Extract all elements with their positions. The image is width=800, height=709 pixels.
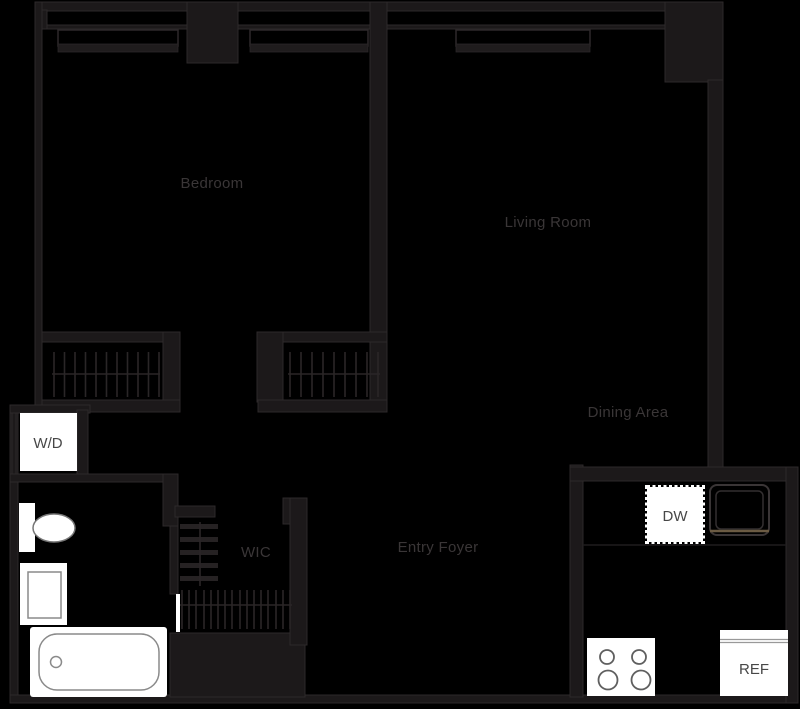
- kitchen-top-wall: [570, 467, 798, 481]
- wic-label: WIC: [241, 544, 271, 561]
- washer-dryer-label: W/D: [33, 435, 62, 452]
- window-line-living: [387, 25, 665, 29]
- wall-top: [37, 2, 667, 11]
- bedroom-south-wall-right: [258, 400, 387, 412]
- room-labels: Bedroom Living Room Dining Area Entry Fo…: [181, 175, 669, 561]
- kitchen-left-wall: [570, 465, 583, 697]
- wic-shelf: [180, 563, 218, 568]
- wall-block-south: [170, 633, 305, 697]
- toilet-bowl: [33, 514, 75, 542]
- bedroom-closets: [42, 332, 387, 412]
- bathtub-drain: [51, 657, 62, 668]
- wic-shelf: [180, 550, 218, 555]
- kitchen-sink: [710, 485, 769, 535]
- wall-bedroom-living-divider: [370, 2, 387, 412]
- bathroom-sink-basin: [28, 572, 61, 618]
- window-line-bedroom-2: [238, 25, 370, 29]
- wall-pillar-top: [187, 2, 238, 63]
- wic-shelf: [180, 524, 218, 529]
- wic-hangers: [182, 590, 290, 629]
- window-sill-bar-bedroom-1: [58, 44, 178, 52]
- window-sill-bar-living: [456, 44, 590, 52]
- wic-right-wall: [290, 498, 307, 645]
- bathroom-top-wall: [10, 474, 178, 482]
- dining-area-label: Dining Area: [588, 404, 669, 421]
- kitchen-appliances: DW REF: [587, 485, 788, 696]
- floor-plan-drawing: W/D DW REF Bedroom Living Room Dining Ar…: [0, 0, 800, 709]
- wic-left-wall: [163, 474, 178, 526]
- floor-plan: W/D DW REF Bedroom Living Room Dining Ar…: [0, 0, 800, 709]
- window-line-bedroom-1: [47, 25, 187, 29]
- bathroom-fixtures: [19, 503, 167, 697]
- entry-foyer-label: Entry Foyer: [398, 539, 479, 556]
- wall-left-upper: [35, 2, 42, 412]
- wall-corner-ne: [665, 2, 723, 82]
- wic-shelf: [180, 576, 218, 581]
- stove: [587, 638, 655, 696]
- window-sill-bar-bedroom-2: [250, 44, 368, 52]
- window-sills: [58, 30, 590, 52]
- wall-right: [708, 80, 723, 472]
- window-jamb-left: [42, 10, 47, 29]
- bathroom-door-opening: [176, 594, 180, 632]
- dishwasher-label: DW: [663, 508, 689, 525]
- bedroom-label: Bedroom: [181, 175, 244, 192]
- living-room-label: Living Room: [505, 214, 592, 231]
- window-sill-bedroom-2: [250, 30, 368, 46]
- washer-dryer: W/D: [20, 413, 77, 471]
- wall-left-accent: [12, 410, 16, 476]
- closet-right-side-wall: [257, 332, 283, 402]
- wd-closet-side-wall: [77, 410, 88, 480]
- window-sill-living: [456, 30, 590, 46]
- closet-left-top-wall: [42, 332, 180, 342]
- wic-closet: [163, 474, 307, 645]
- wic-shelf: [180, 537, 218, 542]
- refrigerator-label: REF: [739, 661, 769, 678]
- wic-top-wall: [175, 506, 215, 517]
- window-sill-bedroom-1: [58, 30, 178, 46]
